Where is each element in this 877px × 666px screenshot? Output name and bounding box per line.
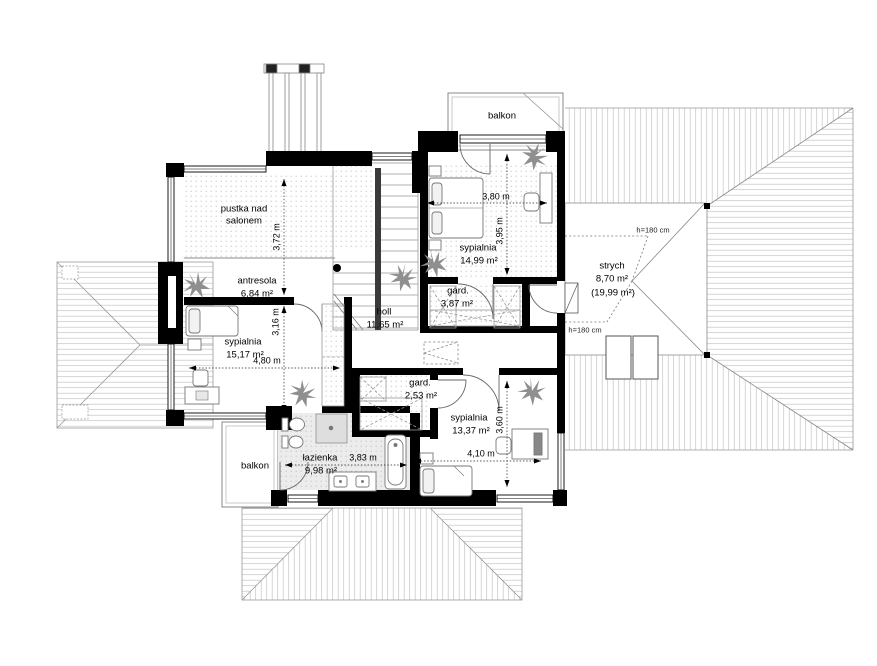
bed-double bbox=[429, 178, 483, 238]
bed-single bbox=[186, 306, 238, 336]
dim-sypialnia-bottom-height: 3,60 m bbox=[495, 406, 506, 434]
wall-window-slot bbox=[168, 276, 176, 328]
door-strych bbox=[529, 285, 557, 313]
nightstand bbox=[429, 166, 441, 176]
room-label-holl: holl bbox=[377, 307, 392, 318]
door-corridor bbox=[294, 304, 322, 332]
chair bbox=[524, 193, 539, 211]
room-label-pustka-line1: pustka nad bbox=[221, 204, 267, 215]
nightstand bbox=[420, 453, 433, 464]
floor-plan: balkon pustka nad salonem antresola 6,84… bbox=[0, 0, 877, 666]
room-label-balkon-top: balkon bbox=[488, 111, 516, 122]
room-area-strych: 8,70 m² bbox=[596, 274, 628, 285]
dim-sypialnia-bottom-width: 4,10 m bbox=[467, 449, 495, 460]
room-area-antresola: 6,84 m² bbox=[241, 289, 273, 300]
bidet bbox=[282, 436, 303, 448]
pergola bbox=[264, 64, 324, 152]
bathtub bbox=[385, 435, 406, 489]
room-label-gard-top: gard. bbox=[447, 286, 469, 297]
dim-sypialnia-top-width: 3,80 m bbox=[482, 192, 510, 203]
room-label-balkon-bottom: balkon bbox=[241, 461, 269, 472]
floor-plan-drawing bbox=[0, 0, 877, 666]
nightstand bbox=[429, 240, 441, 250]
roof-chimney bbox=[62, 266, 78, 279]
dim-pustka-height: 3,72 m bbox=[272, 223, 283, 251]
attic-height-label-bottom: h=180 cm bbox=[568, 325, 601, 336]
plant-icon bbox=[385, 259, 422, 296]
shower bbox=[316, 414, 347, 443]
door-gard-bottom bbox=[438, 380, 466, 408]
strych-door-jamb bbox=[565, 283, 578, 313]
chair bbox=[193, 370, 208, 386]
room-area-sypialnia-top: 14,99 m² bbox=[460, 256, 498, 267]
room-label-strych: strych bbox=[599, 261, 624, 272]
dim-sypialnia-left-width: 4,80 m bbox=[253, 356, 281, 367]
attic-hatch bbox=[424, 342, 458, 364]
room-label-gard-bottom: gard. bbox=[409, 378, 431, 389]
nightstand bbox=[188, 339, 201, 350]
room-label-lazienka: łazienka bbox=[303, 453, 338, 464]
room-area-lazienka: 9,98 m² bbox=[305, 466, 337, 477]
room-label-antresola: antresola bbox=[237, 276, 276, 287]
desk bbox=[540, 173, 552, 223]
roof-bottom bbox=[242, 508, 522, 600]
railing-post bbox=[333, 264, 341, 272]
room-area-gard-top: 3,87 m² bbox=[441, 299, 473, 310]
dim-sypialnia-left-height: 3,16 m bbox=[271, 308, 282, 336]
room-area-total-strych: (19,99 m²) bbox=[591, 288, 635, 299]
room-area-holl: 11,65 m² bbox=[367, 320, 404, 331]
room-label-sypialnia-top: sypialnia bbox=[460, 243, 497, 254]
plant-icon bbox=[515, 374, 550, 409]
dim-lazienka-width: 3,83 m bbox=[349, 453, 377, 464]
attic-height-label-top: h=180 cm bbox=[636, 225, 669, 236]
roof-chimney bbox=[62, 405, 88, 419]
room-label-sypialnia-bottom: sypialnia bbox=[451, 413, 488, 424]
desk-object bbox=[196, 391, 208, 400]
room-label-pustka-line2: salonem bbox=[226, 216, 262, 227]
dim-sypialnia-top-height: 3,95 m bbox=[495, 217, 506, 245]
bed-single bbox=[420, 466, 472, 496]
room-label-sypialnia-left: sypialnia bbox=[225, 337, 262, 348]
room-area-sypialnia-bottom: 13,37 m² bbox=[452, 426, 490, 437]
toilet bbox=[282, 418, 305, 431]
room-area-gard-bottom: 2,53 m² bbox=[405, 391, 437, 402]
